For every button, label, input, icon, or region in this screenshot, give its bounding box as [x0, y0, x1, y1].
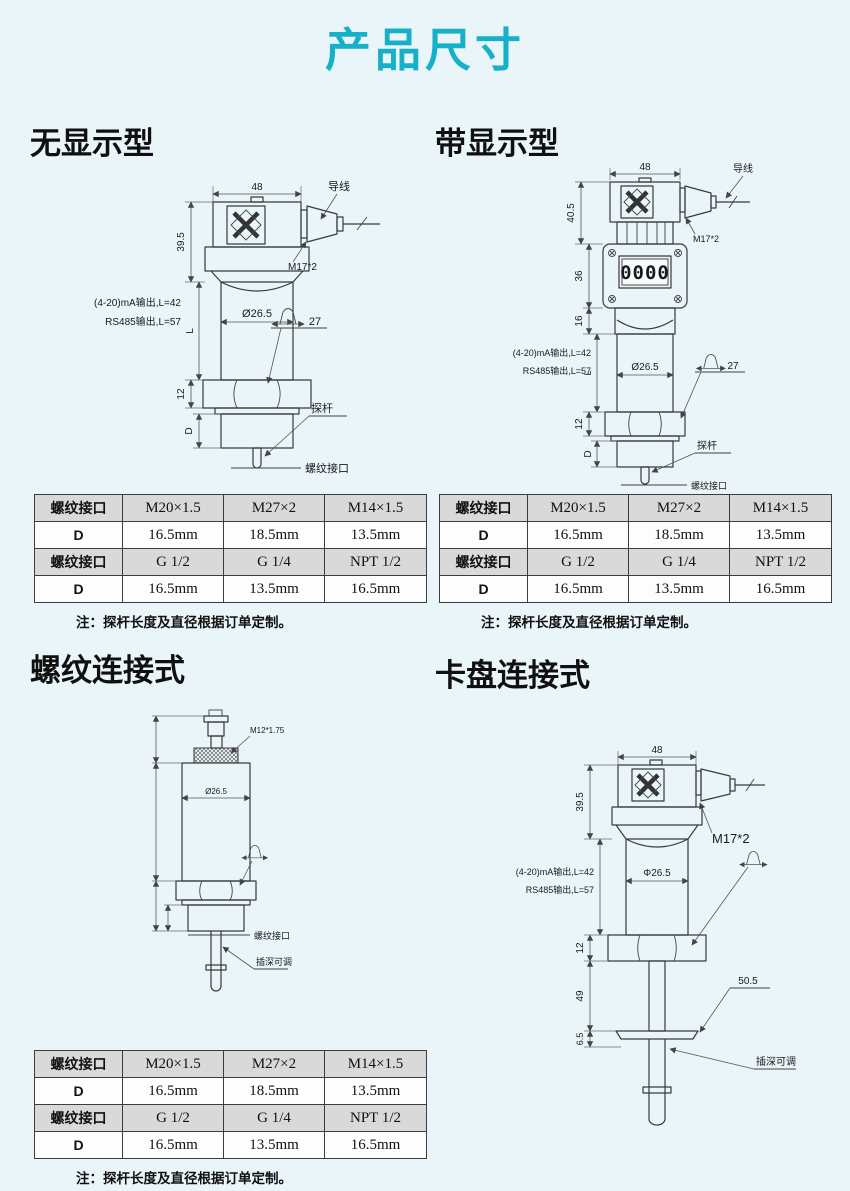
- wire-callout: 导线: [733, 162, 753, 175]
- cell-d-label: D: [35, 522, 123, 549]
- probe-rod: [206, 931, 226, 991]
- cell-d-label: D: [35, 1132, 123, 1159]
- dim-12-label: 12: [575, 942, 586, 954]
- cell: G 1/2: [123, 549, 224, 576]
- output-2: RS485输出,L=57: [523, 365, 591, 376]
- cell: M20×1.5: [123, 1051, 224, 1078]
- dim-39-5-label: 39.5: [575, 792, 586, 812]
- cell: M27×2: [224, 1051, 325, 1078]
- section-chuck: 卡盘连接式 48 M17*2: [435, 650, 845, 1190]
- dia-label: Φ26.5: [643, 868, 671, 879]
- cell: 13.5mm: [629, 576, 730, 603]
- dimension-16: 16: [574, 308, 615, 334]
- dimension-12: 12: [176, 380, 203, 408]
- dia-label: Ø26.5: [631, 362, 659, 373]
- chuck-technical-drawing: 48 M17*2 39: [450, 735, 850, 1145]
- cable-gland: [696, 769, 765, 801]
- cell: M27×2: [224, 495, 325, 522]
- cell: 16.5mm: [123, 576, 224, 603]
- no-display-technical-drawing: 48 导线 M17*2: [85, 170, 455, 475]
- output-annotations: (4-20)mA输出,L=42 RS485输出,L=57: [516, 866, 594, 895]
- cell: G 1/4: [224, 1105, 325, 1132]
- spec-table-wrap-1: 螺纹接口 M20×1.5 M27×2 M14×1.5 D 16.5mm 18.5…: [34, 494, 427, 631]
- dimension-dia: Ø26.5: [617, 362, 673, 375]
- dia-label: Ø26.5: [242, 308, 272, 320]
- probe-label: 探杆: [652, 439, 731, 472]
- cell-thread-header: 螺纹接口: [440, 495, 528, 522]
- cell-d-label: D: [440, 522, 528, 549]
- output-2: RS485输出,L=57: [105, 315, 181, 328]
- dimension-49: 49: [575, 961, 616, 1031]
- neck-and-body: [615, 308, 675, 412]
- cell-thread-header: 螺纹接口: [440, 549, 528, 576]
- section-heading: 带显示型: [435, 118, 835, 163]
- cell: 16.5mm: [325, 1132, 427, 1159]
- section-threaded: 螺纹连接式 M12*1.75 Ø26.5: [30, 645, 430, 1185]
- cell: 13.5mm: [730, 522, 832, 549]
- table-row: 螺纹接口 G 1/2 G 1/4 NPT 1/2: [35, 549, 427, 576]
- wire-label: 导线: [726, 162, 753, 198]
- probe-callout: 探杆: [311, 401, 333, 415]
- cell-thread-header: 螺纹接口: [35, 1051, 123, 1078]
- table-note: 注：探杆长度及直径根据订单定制。: [76, 1167, 427, 1187]
- probe-callout: 探杆: [697, 439, 717, 452]
- wrench-flats-symbol: 27: [268, 309, 327, 384]
- process-thread: [215, 408, 299, 448]
- tip-thread-label: M12*1.75: [231, 726, 285, 753]
- dim-16-label: 16: [574, 315, 585, 327]
- dim-D-label: D: [184, 427, 195, 434]
- cell-d-label: D: [440, 576, 528, 603]
- section-with-display: 带显示型 48 导线: [435, 118, 835, 638]
- cell: 18.5mm: [224, 1078, 325, 1105]
- table-row: 螺纹接口 M20×1.5 M27×2 M14×1.5: [35, 1051, 427, 1078]
- wire-callout: 导线: [328, 179, 350, 193]
- dimension-48: 48: [213, 182, 301, 202]
- dimension-39-5: 39.5: [575, 765, 618, 839]
- dim-49-label: 49: [575, 990, 586, 1002]
- cell: M14×1.5: [325, 495, 427, 522]
- dim-48-label: 48: [251, 182, 263, 193]
- table-row: 螺纹接口 M20×1.5 M27×2 M14×1.5: [35, 495, 427, 522]
- dim-12-label: 12: [176, 388, 187, 400]
- output-2: RS485输出,L=57: [526, 884, 594, 895]
- knurled-ring: [617, 222, 673, 244]
- spec-table-3: 螺纹接口 M20×1.5 M27×2 M14×1.5 D 16.5mm 18.5…: [34, 1050, 427, 1159]
- hex-nut: [203, 380, 311, 408]
- depth-callout: 插深可调: [756, 1055, 796, 1068]
- table-note: 注：探杆长度及直径根据订单定制。: [76, 611, 427, 631]
- table-row: 螺纹接口 G 1/2 G 1/4 NPT 1/2: [35, 1105, 427, 1132]
- top-connector: [204, 710, 228, 748]
- dim-36-label: 36: [574, 270, 585, 282]
- output-1: (4-20)mA输出,L=42: [94, 296, 181, 309]
- thread-interface-label: 螺纹接口: [231, 461, 349, 475]
- dia-label: Ø26.5: [205, 787, 227, 796]
- depth-adjust-label: 插深可调: [670, 1049, 796, 1069]
- cell-d-label: D: [35, 576, 123, 603]
- spec-table-2: 螺纹接口 M20×1.5 M27×2 M14×1.5 D 16.5mm 18.5…: [439, 494, 832, 603]
- cell: 18.5mm: [629, 522, 730, 549]
- probe-rod: [253, 448, 261, 468]
- cell: M14×1.5: [730, 495, 832, 522]
- dim-48-label: 48: [639, 162, 651, 173]
- thread-interface-callout: 螺纹接口: [691, 480, 727, 491]
- dimension-48: 48: [618, 745, 696, 765]
- cell: M20×1.5: [528, 495, 629, 522]
- flats-27-label: 27: [309, 316, 321, 328]
- dim-48-label: 48: [651, 745, 663, 756]
- depth-adjust-label: 插深可调: [223, 947, 292, 969]
- sensor-body: [182, 763, 250, 881]
- hex-nut: [605, 412, 685, 436]
- dimension-48: 48: [610, 162, 680, 180]
- dim-50-5-label: 50.5: [738, 976, 758, 987]
- cell: 13.5mm: [224, 1132, 325, 1159]
- flange-disc: [616, 1031, 698, 1039]
- dim-L-label: L: [185, 328, 196, 334]
- wrench-flats-symbol: [240, 845, 268, 885]
- cell-thread-header: 螺纹接口: [35, 549, 123, 576]
- threaded-technical-drawing: M12*1.75 Ø26.5: [90, 707, 390, 1002]
- cell: 16.5mm: [528, 522, 629, 549]
- thread-interface-callout: 螺纹接口: [254, 930, 290, 941]
- dimension-dia: Ø26.5: [182, 787, 250, 798]
- cell: 13.5mm: [224, 576, 325, 603]
- hex-nut: [176, 881, 256, 900]
- gland-thread-label: M17*2: [686, 218, 719, 244]
- section-heading: 螺纹连接式: [30, 645, 430, 690]
- m17-callout: M17*2: [712, 831, 750, 846]
- cell-thread-header: 螺纹接口: [35, 1105, 123, 1132]
- cell: 16.5mm: [325, 576, 427, 603]
- dimension-D: D: [583, 441, 617, 467]
- gland-thread-label: M17*2: [700, 803, 750, 846]
- cell: 18.5mm: [224, 522, 325, 549]
- spec-table-1: 螺纹接口 M20×1.5 M27×2 M14×1.5 D 16.5mm 18.5…: [34, 494, 427, 603]
- output-annotations: (4-20)mA输出,L=42 RS485输出,L=57: [94, 296, 181, 328]
- cell: 16.5mm: [123, 1132, 224, 1159]
- sensor-head: [618, 760, 696, 807]
- cell: M14×1.5: [325, 1051, 427, 1078]
- cell: M27×2: [629, 495, 730, 522]
- dimension-D: D: [184, 414, 221, 448]
- table-row: 螺纹接口 G 1/2 G 1/4 NPT 1/2: [440, 549, 832, 576]
- wrench-flats-symbol: 27: [681, 354, 745, 418]
- thread-interface-label: 螺纹接口: [621, 480, 727, 491]
- cell: M20×1.5: [123, 495, 224, 522]
- section-no-display: 无显示型 48 导线: [30, 118, 430, 638]
- dim-12-label: 12: [574, 418, 585, 430]
- cell: 16.5mm: [528, 576, 629, 603]
- cell: G 1/4: [629, 549, 730, 576]
- dim-D-label: D: [583, 450, 594, 457]
- dimension-6-5: 6.5: [575, 1031, 621, 1047]
- table-row: D 16.5mm 18.5mm 13.5mm: [440, 522, 832, 549]
- wrench-flats-symbol: [692, 851, 767, 945]
- table-row: D 16.5mm 18.5mm 13.5mm: [35, 522, 427, 549]
- dimension-36: 36: [574, 244, 603, 308]
- process-thread: [611, 436, 679, 467]
- depth-callout: 插深可调: [256, 956, 292, 967]
- dim-40-5-label: 40.5: [566, 203, 577, 223]
- lcd-digits: 0000: [620, 262, 670, 284]
- cable-gland: [301, 206, 380, 242]
- cell-d-label: D: [35, 1078, 123, 1105]
- cell: 16.5mm: [123, 1078, 224, 1105]
- cell: 16.5mm: [730, 576, 832, 603]
- dimension-12: 12: [575, 935, 608, 961]
- table-row: D 16.5mm 13.5mm 16.5mm: [35, 1132, 427, 1159]
- cell: 13.5mm: [325, 522, 427, 549]
- hex-nut: [608, 935, 706, 961]
- probe-upper: [649, 961, 665, 1031]
- flange-dia-label: 50.5: [700, 976, 770, 1032]
- output-1: (4-20)mA输出,L=42: [513, 347, 591, 358]
- probe-rod: [641, 467, 649, 484]
- thread-interface-label: 螺纹接口: [188, 930, 290, 941]
- cell: G 1/2: [528, 549, 629, 576]
- table-row: D 16.5mm 13.5mm 16.5mm: [440, 576, 832, 603]
- cell: NPT 1/2: [325, 1105, 427, 1132]
- dimension-40-5: 40.5: [566, 182, 610, 244]
- page-title: 产品尺寸: [0, 14, 850, 80]
- cell: NPT 1/2: [730, 549, 832, 576]
- output-annotations: (4-20)mA输出,L=42 RS485输出,L=57: [513, 347, 591, 376]
- dim-39-5-label: 39.5: [176, 232, 187, 252]
- cell: G 1/4: [224, 549, 325, 576]
- cell: 16.5mm: [123, 522, 224, 549]
- dimension-12: 12: [574, 412, 605, 436]
- cell: G 1/2: [123, 1105, 224, 1132]
- spec-table-wrap-3: 螺纹接口 M20×1.5 M27×2 M14×1.5 D 16.5mm 18.5…: [34, 1050, 427, 1187]
- section-heading: 无显示型: [30, 118, 430, 163]
- dim-6-5-label: 6.5: [575, 1033, 585, 1046]
- table-row: D 16.5mm 18.5mm 13.5mm: [35, 1078, 427, 1105]
- page: 产品尺寸 无显示型 48: [0, 0, 850, 1191]
- dimension-39-5: 39.5: [176, 202, 213, 282]
- flats-27-label: 27: [727, 361, 739, 372]
- probe-lower: [643, 1039, 671, 1125]
- spec-table-wrap-2: 螺纹接口 M20×1.5 M27×2 M14×1.5 D 16.5mm 18.5…: [439, 494, 832, 631]
- cell: NPT 1/2: [325, 549, 427, 576]
- m17-callout: M17*2: [693, 234, 719, 244]
- cable-gland: [680, 186, 750, 218]
- cell: 13.5mm: [325, 1078, 427, 1105]
- section-heading: 卡盘连接式: [435, 650, 845, 695]
- knurled-band: [194, 748, 238, 763]
- display-housing: 0000: [603, 244, 687, 308]
- process-thread: [182, 900, 250, 931]
- dimension-dia: Φ26.5: [626, 868, 688, 881]
- sensor-head: [213, 197, 301, 247]
- dimension-L: L: [185, 282, 199, 380]
- sensor-head: [610, 178, 680, 222]
- table-row: 螺纹接口 M20×1.5 M27×2 M14×1.5: [440, 495, 832, 522]
- cell-thread-header: 螺纹接口: [35, 495, 123, 522]
- m12-callout: M12*1.75: [250, 726, 285, 735]
- thread-interface-callout: 螺纹接口: [305, 461, 349, 475]
- table-row: D 16.5mm 13.5mm 16.5mm: [35, 576, 427, 603]
- with-display-technical-drawing: 48 导线 M17*2: [445, 158, 835, 493]
- output-1: (4-20)mA输出,L=42: [516, 866, 594, 877]
- table-note: 注：探杆长度及直径根据订单定制。: [481, 611, 832, 631]
